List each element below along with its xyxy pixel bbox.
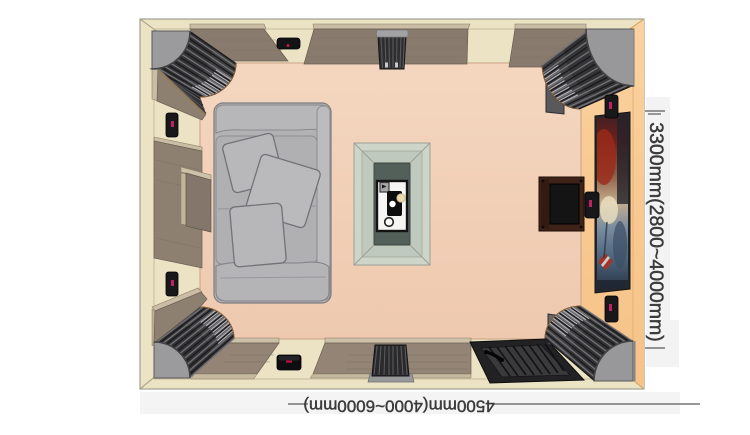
svg-text:3300mm(2800~4000mm): 3300mm(2800~4000mm) (645, 122, 667, 342)
svg-text:4500mm(4000~6000mm): 4500mm(4000~6000mm) (303, 397, 494, 416)
